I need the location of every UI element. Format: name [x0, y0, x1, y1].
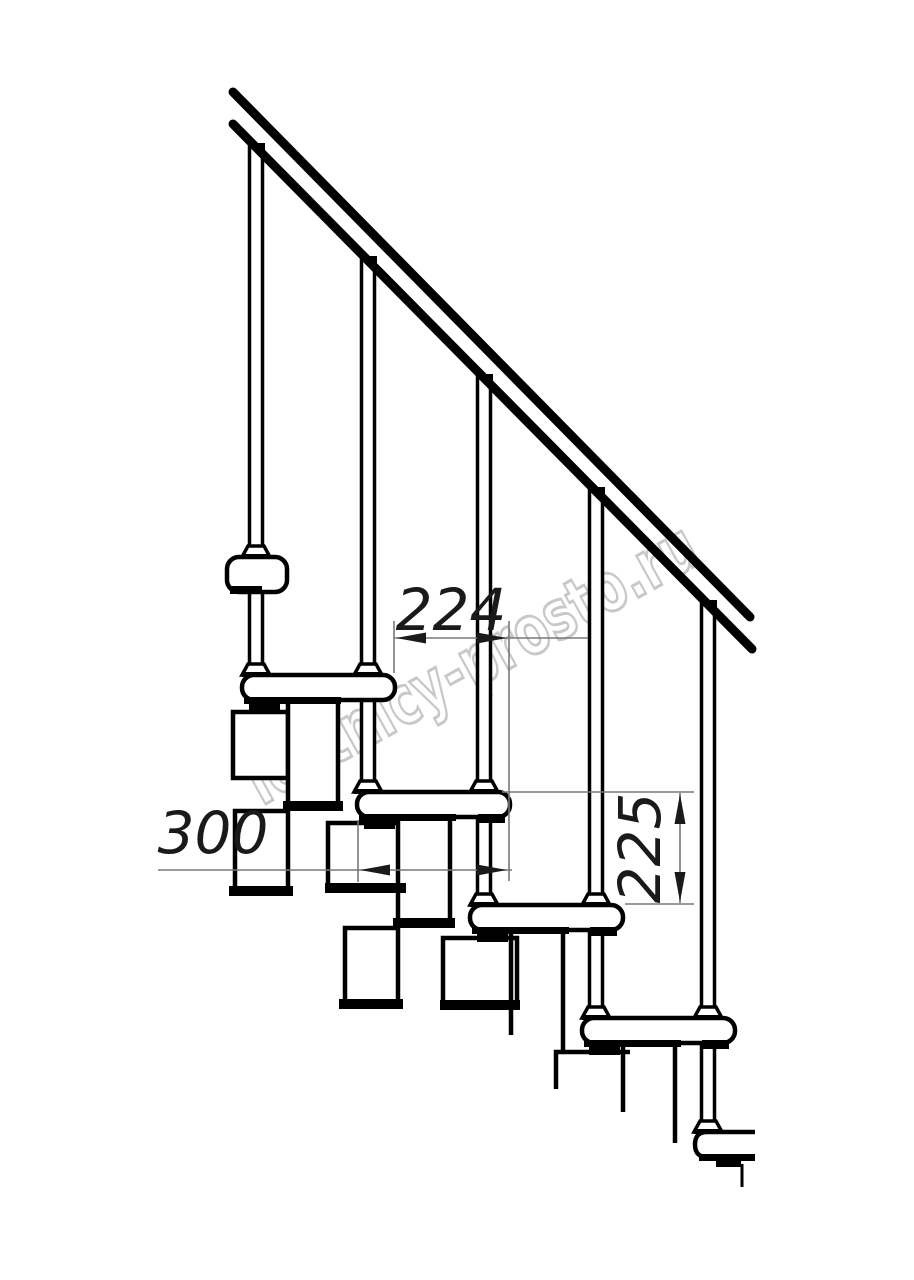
sleeve-box-2 — [443, 938, 517, 1007]
dim-225-label: 225 — [606, 793, 674, 904]
sleeve-box-1 — [328, 823, 403, 890]
support-column-2 — [398, 817, 450, 925]
handrail-bottom-edge — [233, 124, 752, 649]
dim-224-label: 224 — [396, 576, 507, 644]
tread-2 — [357, 792, 510, 817]
staircase-drawing: lestnicy-prosto.ru — [0, 0, 914, 1280]
handrail — [233, 92, 752, 649]
sleeve-box-3-partial — [556, 1052, 630, 1089]
tread-5-cut — [695, 1132, 755, 1157]
support-column-1 — [288, 700, 338, 808]
tread-4 — [582, 1018, 735, 1043]
tread-1 — [242, 675, 395, 700]
dim-300-label: 300 — [158, 799, 269, 867]
lower-left-box-2 — [345, 928, 398, 1004]
baluster-1 — [250, 147, 263, 675]
dim-225-arrow-down — [675, 872, 686, 902]
tread-3 — [470, 905, 623, 930]
baluster-5 — [702, 604, 715, 1132]
dim-225-arrow-up — [675, 794, 686, 824]
baluster-4 — [590, 490, 603, 1018]
baluster-2 — [362, 260, 375, 792]
drawing-canvas: lestnicy-prosto.ru — [0, 0, 914, 1280]
upper-sleeve-box — [233, 712, 288, 778]
